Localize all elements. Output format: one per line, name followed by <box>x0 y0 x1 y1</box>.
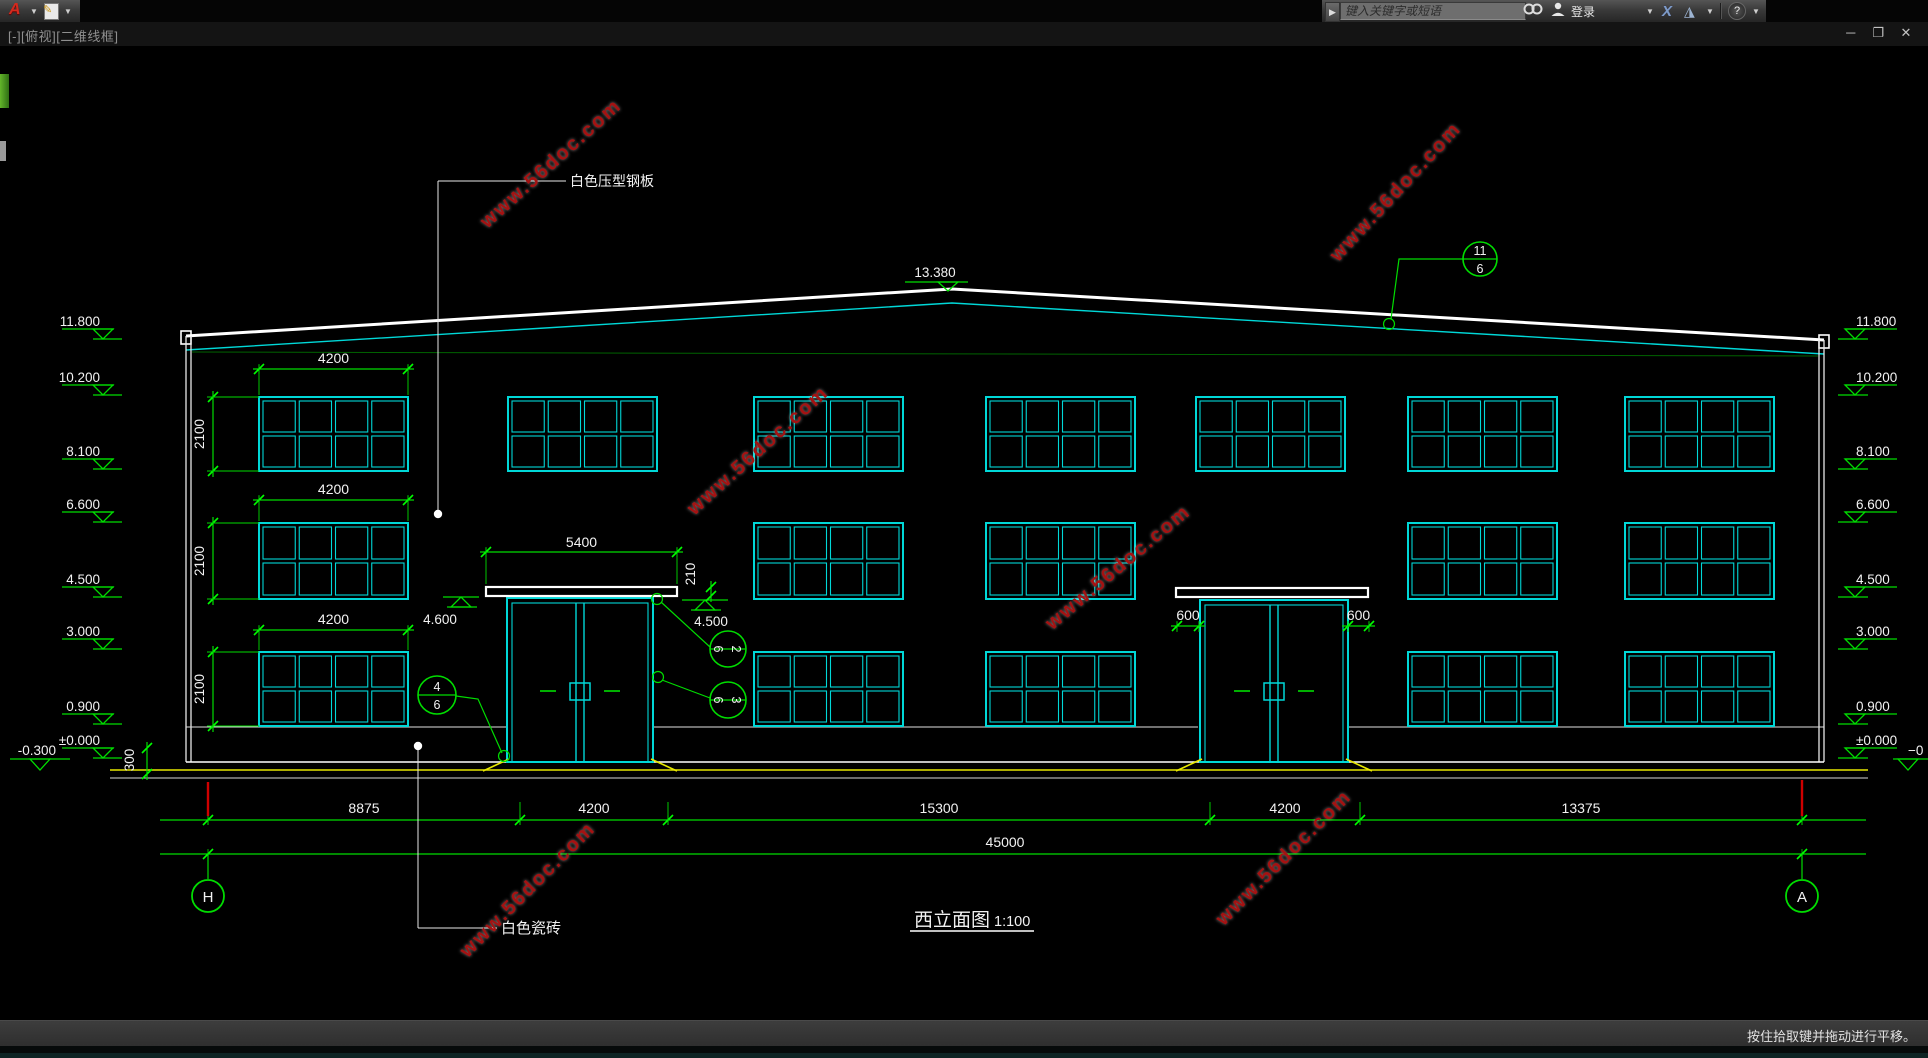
elevation-value: −0 <box>1908 743 1923 758</box>
marker-triangle <box>1845 459 1865 469</box>
scrollbar-fragment[interactable] <box>0 141 6 161</box>
window-pane <box>831 527 863 559</box>
elevation-value: 11.800 <box>60 314 100 329</box>
marker-triangle <box>1845 639 1865 649</box>
v-dimension: 300 <box>122 742 152 780</box>
elevation-value: 4.500 <box>1856 572 1890 587</box>
window-pane <box>1099 656 1131 687</box>
dim-value: 15300 <box>920 800 959 816</box>
window-frame <box>259 652 408 726</box>
cad-canvas[interactable]: 11.80011.80010.20010.2008.1008.1006.6006… <box>0 0 1928 1058</box>
docked-palette-fragment <box>0 74 9 108</box>
window-pane <box>336 563 368 595</box>
tool-dropdown-icon[interactable]: ▼ <box>64 7 72 16</box>
window-pane <box>1448 527 1480 559</box>
window-frame <box>1625 652 1774 726</box>
window-pane <box>867 436 899 467</box>
window-pane <box>1738 401 1770 432</box>
window-frame <box>1408 397 1557 471</box>
status-hint-text: 按住拾取键并拖动进行平移。 <box>1747 1026 1916 1045</box>
window-pane <box>1448 563 1480 595</box>
window-pane <box>336 691 368 722</box>
window <box>259 523 408 599</box>
window-pane <box>299 401 331 432</box>
marker-triangle <box>451 597 471 607</box>
window-pane <box>1063 691 1095 722</box>
window-pane <box>1629 436 1661 467</box>
window <box>986 652 1135 726</box>
window-pane <box>990 436 1022 467</box>
dim-value: 4200 <box>1269 800 1300 816</box>
dim-value: 4200 <box>578 800 609 816</box>
app-window: 11.80011.80010.20010.2008.1008.1006.6006… <box>0 0 1928 1058</box>
marker-triangle <box>93 459 113 469</box>
elevation-value: 3.000 <box>1856 624 1890 639</box>
detail-bubble: 26 <box>652 594 747 668</box>
window-pane <box>1448 401 1480 432</box>
window-pane <box>1485 401 1517 432</box>
window-pane <box>794 527 826 559</box>
window-pane <box>585 401 617 432</box>
window-pane <box>372 436 404 467</box>
viewport-controls-label[interactable]: [-][俯视][二维线框] <box>8 26 119 45</box>
window-pane <box>1738 527 1770 559</box>
entrance-canopy <box>486 587 677 596</box>
window <box>754 523 903 599</box>
window-pane <box>1665 527 1697 559</box>
window-pane <box>299 563 331 595</box>
door-frame <box>507 598 653 762</box>
h-dimension: 4200 <box>253 350 414 395</box>
window-pane <box>990 401 1022 432</box>
elevation-value: ±0.000 <box>59 733 100 748</box>
window-pane <box>831 691 863 722</box>
window-pane <box>1026 436 1058 467</box>
grid-bubble: H <box>192 880 224 912</box>
help-icon[interactable]: ? <box>1728 1 1746 21</box>
window-pane <box>372 691 404 722</box>
marker-triangle <box>93 748 113 758</box>
elevation-value: 10.200 <box>59 370 100 385</box>
window-pane <box>263 436 295 467</box>
a360-icon[interactable]: ◮ <box>1684 1 1695 21</box>
search-expand-button[interactable]: ▶ <box>1325 2 1340 22</box>
window-frame <box>1408 523 1557 599</box>
marker-triangle <box>1845 329 1865 339</box>
window-frame <box>259 397 408 471</box>
infocenter-toolbar: ▶ 登录 ▼ X ◮ ▼ ? ▼ <box>1322 0 1766 22</box>
bottom-dimensions: 887542001530042001337545000 <box>160 780 1866 879</box>
window-pane <box>1063 436 1095 467</box>
window-pane <box>794 563 826 595</box>
window-pane <box>867 656 899 687</box>
elevation-value: 13.380 <box>914 265 955 280</box>
bottom-accent-line <box>0 1053 1928 1058</box>
window <box>259 652 408 726</box>
window-pane <box>831 436 863 467</box>
window-pane <box>1063 527 1095 559</box>
roof <box>181 289 1829 356</box>
window-pane <box>867 563 899 595</box>
window-pane <box>299 436 331 467</box>
viewport-header: [-][俯视][二维线框] ─ ❐ ✕ <box>0 22 1928 46</box>
leader-grip <box>653 672 664 683</box>
window-pane <box>1309 436 1341 467</box>
window <box>259 397 408 471</box>
detail-number: 3 <box>729 697 743 704</box>
window-pane <box>1412 401 1444 432</box>
window-pane <box>336 656 368 687</box>
exchange-apps-icon[interactable]: X <box>1662 1 1672 21</box>
window-pane <box>867 691 899 722</box>
window <box>986 397 1135 471</box>
window-pane <box>621 436 653 467</box>
window-pane <box>1738 436 1770 467</box>
window-pane <box>548 436 580 467</box>
window <box>1196 397 1345 471</box>
elevation-value: 8.100 <box>66 444 100 459</box>
detail-bubble-text: 46 <box>434 680 441 712</box>
search-input[interactable] <box>1340 2 1526 20</box>
window-pane <box>263 563 295 595</box>
window-pane <box>1026 563 1058 595</box>
elevation-marker-right: 3.000 <box>1838 624 1897 649</box>
window-pane <box>1099 691 1131 722</box>
window-pane <box>831 401 863 432</box>
window-pane <box>1026 656 1058 687</box>
h-dimension: 4200 <box>253 481 414 521</box>
roof-underline <box>186 303 1824 354</box>
window-pane <box>1026 401 1058 432</box>
window-pane <box>548 401 580 432</box>
window-pane <box>1738 656 1770 687</box>
window-pane <box>1309 401 1341 432</box>
window-pane <box>1702 401 1734 432</box>
leader-line <box>456 696 502 753</box>
detail-number: 4 <box>434 680 441 694</box>
elevation-marker-left: 6.600 <box>62 497 122 522</box>
elevation-marker-right: 0.900 <box>1838 699 1897 724</box>
elevation-marker-left: 3.000 <box>62 624 122 649</box>
window-pane <box>1521 401 1553 432</box>
elevation-value: 4.500 <box>66 572 100 587</box>
window <box>1625 523 1774 599</box>
a360-dropdown-icon[interactable]: ▼ <box>1706 7 1714 16</box>
door-handle <box>570 683 590 700</box>
elevation-value: 6.600 <box>1856 497 1890 512</box>
window-pane <box>1665 691 1697 722</box>
eave-green-line <box>192 352 1818 356</box>
login-dropdown-icon[interactable]: ▼ <box>1646 7 1654 16</box>
grid-bubble-label: A <box>1797 889 1807 906</box>
h-dimension: 4200 <box>253 611 414 650</box>
detail-bubble-text: 116 <box>1474 244 1487 276</box>
window <box>1408 652 1557 726</box>
window-frame <box>1625 397 1774 471</box>
elevation-marker-left: ±0.000 <box>59 733 122 758</box>
app-logo-icon[interactable]: A <box>9 1 21 19</box>
elevation-value: ±0.000 <box>1856 733 1897 748</box>
window-pane <box>1665 436 1697 467</box>
dim-value: 600 <box>1176 607 1200 623</box>
v-dimension: 2100 <box>192 517 259 605</box>
window-pane <box>512 436 544 467</box>
snapshot-tool-icon[interactable]: ✎ <box>44 3 59 20</box>
window-pane <box>758 691 790 722</box>
drawing-title-text: 西立面图 <box>914 909 990 931</box>
window-pane <box>1665 656 1697 687</box>
dim-value: 4200 <box>318 350 349 366</box>
window-pane <box>299 656 331 687</box>
app-title-bar: A ▼ ✎ ▼ ▶ 登录 ▼ X ◮ ▼ ? ▼ <box>0 0 1928 22</box>
dim-value: 4200 <box>318 481 349 497</box>
marker-triangle <box>1845 748 1865 758</box>
window-pane <box>1099 436 1131 467</box>
marker-triangle <box>93 587 113 597</box>
window-pane <box>372 401 404 432</box>
window-pane <box>1063 656 1095 687</box>
window-pane <box>299 527 331 559</box>
window-pane <box>1702 656 1734 687</box>
marker-triangle <box>1845 587 1865 597</box>
h-dimension: 5400 <box>480 534 683 584</box>
door-frame <box>1200 600 1348 762</box>
elevation-marker-right: 4.500 <box>1838 572 1897 597</box>
window-pane <box>1236 401 1268 432</box>
window-pane <box>263 527 295 559</box>
elevation-marker-left: 10.200 <box>59 370 122 395</box>
marker-triangle <box>695 600 715 610</box>
marker-triangle <box>1845 714 1865 724</box>
detail-bubble: 36 <box>653 672 747 719</box>
marker-triangle <box>1898 759 1918 770</box>
window-pane <box>1629 691 1661 722</box>
window-pane <box>336 401 368 432</box>
doors <box>483 598 1372 771</box>
leader-dot <box>414 742 422 750</box>
elevation-marker-right: 11.800 <box>1838 314 1897 339</box>
window-pane <box>1521 563 1553 595</box>
elevation-marker-left: 8.100 <box>62 444 122 469</box>
window-pane <box>1273 401 1305 432</box>
login-button[interactable]: 登录 <box>1571 1 1595 21</box>
detail-bubble: 46 <box>418 676 510 762</box>
elevation-markers: 11.80011.80010.20010.2008.1008.1006.6006… <box>10 265 1928 770</box>
door <box>483 598 677 771</box>
drawing-title: 西立面图1:100 <box>910 909 1034 931</box>
dim-value: 13375 <box>1562 800 1601 816</box>
watermark-text: www.56doc.com <box>475 94 626 233</box>
marker-triangle <box>93 714 113 724</box>
dim-value: 4200 <box>318 611 349 627</box>
drawing-scale-text: 1:100 <box>994 914 1030 930</box>
roof-line <box>186 289 1824 340</box>
window-pane <box>263 656 295 687</box>
elevation-marker-left: 4.500 <box>62 572 122 597</box>
sheet-number: 6 <box>1477 262 1484 276</box>
window-pane <box>372 656 404 687</box>
window-pane <box>990 527 1022 559</box>
ridge-elevation-marker: 13.380 <box>905 265 968 291</box>
window-pane <box>1485 527 1517 559</box>
elevation-marker-low-right: −0 <box>1893 743 1928 770</box>
window-pane <box>831 656 863 687</box>
grid-bubble: A <box>1786 880 1818 912</box>
door-handle <box>1264 683 1284 700</box>
marker-triangle <box>1845 512 1865 522</box>
window-pane <box>758 656 790 687</box>
quick-access-toolbar: A ▼ ✎ ▼ <box>0 0 80 22</box>
window-pane <box>1412 563 1444 595</box>
marker-triangle <box>30 759 50 770</box>
walls <box>186 336 1824 762</box>
detail-number: 2 <box>729 646 743 653</box>
window-pane <box>1200 401 1232 432</box>
leader-line <box>1391 259 1463 319</box>
window-pane <box>1521 527 1553 559</box>
grid-bubble-label: H <box>203 889 214 906</box>
window-frame <box>986 397 1135 471</box>
window-pane <box>794 656 826 687</box>
elevation-marker-left: 0.900 <box>62 699 122 724</box>
canopy-elevation-marker: 4.500 <box>682 600 728 629</box>
window-pane <box>1665 563 1697 595</box>
elevation-value: 6.600 <box>66 497 100 512</box>
window-pane <box>1099 401 1131 432</box>
window-pane <box>831 563 863 595</box>
window-controls: ─ ❐ ✕ <box>1839 25 1918 41</box>
window-pane <box>1273 436 1305 467</box>
window-pane <box>585 436 617 467</box>
window-frame <box>1408 652 1557 726</box>
v-dimension: 2100 <box>192 391 259 477</box>
window-frame <box>508 397 657 471</box>
material-label: 白色瓷砖 <box>414 742 561 937</box>
dim-value: 8875 <box>348 800 379 816</box>
window-frame <box>259 523 408 599</box>
window-pane <box>1521 656 1553 687</box>
window <box>1408 397 1557 471</box>
window-pane <box>1200 436 1232 467</box>
elevation-marker-right: 10.200 <box>1838 370 1897 395</box>
window-pane <box>1485 436 1517 467</box>
elevation-value: 0.900 <box>66 699 100 714</box>
help-dropdown-icon[interactable]: ▼ <box>1752 7 1760 16</box>
window-pane <box>794 691 826 722</box>
material-label-text: 白色压型钢板 <box>570 173 654 189</box>
window-pane <box>990 691 1022 722</box>
window-frame <box>1625 523 1774 599</box>
window-pane <box>1702 691 1734 722</box>
window-pane <box>512 401 544 432</box>
window-pane <box>1485 563 1517 595</box>
window-pane <box>1412 656 1444 687</box>
window <box>508 397 657 471</box>
window-pane <box>1448 691 1480 722</box>
window-pane <box>1236 436 1268 467</box>
window-pane <box>1485 656 1517 687</box>
window-pane <box>1702 563 1734 595</box>
watermark-text: www.56doc.com <box>1041 500 1195 634</box>
window <box>1408 523 1557 599</box>
window-pane <box>1026 527 1058 559</box>
dim-value: 5400 <box>566 534 597 550</box>
window-pane <box>1448 656 1480 687</box>
leader-line <box>662 680 710 698</box>
window <box>1625 397 1774 471</box>
window-pane <box>1738 691 1770 722</box>
window-pane <box>1738 563 1770 595</box>
window-pane <box>372 527 404 559</box>
watermark-text: www.56doc.com <box>1325 118 1466 267</box>
window-pane <box>1026 691 1058 722</box>
window <box>754 652 903 726</box>
window-pane <box>990 563 1022 595</box>
logo-dropdown-icon[interactable]: ▼ <box>30 7 38 16</box>
elevation-value: 8.100 <box>1856 444 1890 459</box>
window-pane <box>299 691 331 722</box>
window-pane <box>1521 436 1553 467</box>
toolbar-separator <box>1720 3 1722 19</box>
ground <box>110 727 1868 778</box>
elevation-marker-right: ±0.000 <box>1838 733 1897 758</box>
sheet-number: 6 <box>711 697 725 704</box>
window-pane <box>1629 527 1661 559</box>
dim-value: 2100 <box>192 419 207 449</box>
window-pane <box>1063 401 1095 432</box>
window-pane <box>1702 527 1734 559</box>
window-frame <box>754 523 903 599</box>
window-pane <box>1629 656 1661 687</box>
marker-triangle <box>1845 385 1865 395</box>
marker-triangle <box>93 329 113 339</box>
elevation-marker-left: 11.800 <box>60 314 122 339</box>
minimize-button[interactable]: ─ <box>1839 25 1863 40</box>
window <box>1625 652 1774 726</box>
window-pane <box>1448 436 1480 467</box>
elevation-value: -0.300 <box>18 743 56 758</box>
window-frame <box>754 652 903 726</box>
h-dimension: 600 <box>1342 607 1375 632</box>
entrance-canopy <box>1176 588 1368 597</box>
close-button[interactable]: ✕ <box>1894 25 1918 41</box>
sheet-number: 6 <box>711 646 725 653</box>
watermark-text: www.56doc.com <box>455 818 600 963</box>
window-pane <box>1665 401 1697 432</box>
window-pane <box>263 691 295 722</box>
elevation-value: 3.000 <box>66 624 100 639</box>
elevation-value: 10.200 <box>1856 370 1897 385</box>
window-frame <box>986 652 1135 726</box>
window-pane <box>1485 691 1517 722</box>
window-pane <box>867 401 899 432</box>
dimensions: 5400600600420042004200210021002100210300… <box>122 350 1866 879</box>
restore-button[interactable]: ❐ <box>1866 25 1890 41</box>
v-dimension: 210 <box>683 563 716 602</box>
window-pane <box>336 527 368 559</box>
window-pane <box>1412 436 1444 467</box>
window-pane <box>1702 436 1734 467</box>
dim-value: 45000 <box>986 834 1025 850</box>
window-pane <box>1412 527 1444 559</box>
dim-value: 210 <box>683 563 698 586</box>
elevation-value: 0.900 <box>1856 699 1890 714</box>
window-pane <box>794 436 826 467</box>
window-pane <box>1412 691 1444 722</box>
window-pane <box>990 656 1022 687</box>
window-pane <box>867 527 899 559</box>
window-pane <box>336 436 368 467</box>
